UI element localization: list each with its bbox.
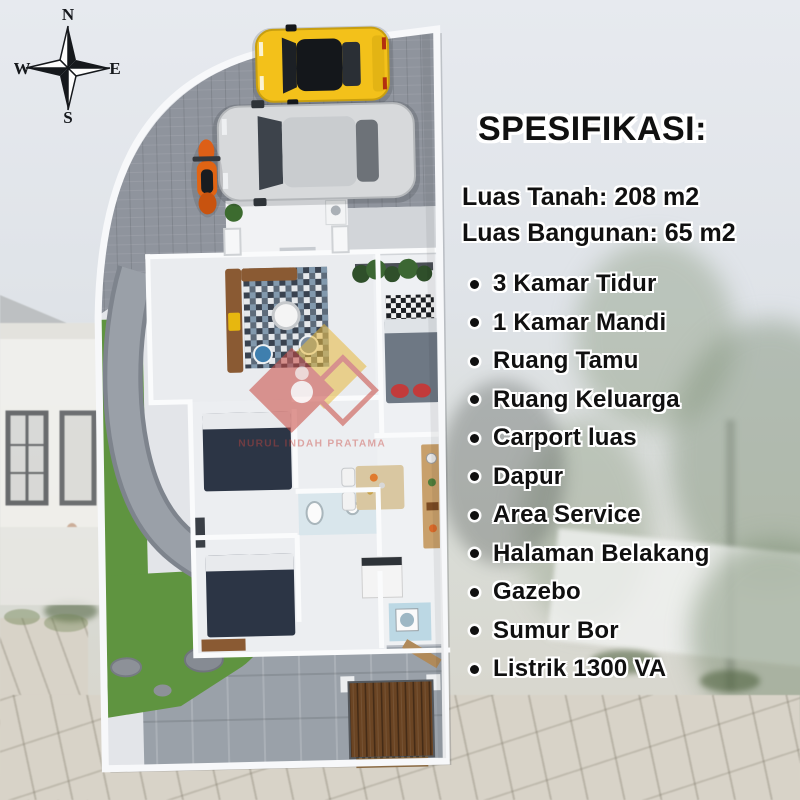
- bed-pillows: [206, 553, 294, 571]
- bullet-icon: [470, 472, 479, 481]
- yellow-car: [252, 22, 394, 108]
- bullet-icon: [470, 318, 479, 327]
- building-area: Luas Bangunan: 65 m2: [462, 215, 798, 251]
- spec-item-label: Ruang Tamu: [493, 347, 639, 375]
- bullet-icon: [470, 511, 479, 520]
- spec-title: SPESIFIKASI:: [478, 110, 798, 149]
- spec-item: Carport luas: [470, 419, 798, 458]
- spec-item: Area Service: [470, 496, 798, 535]
- gazebo-deck: [348, 680, 434, 758]
- compass-west-label: W: [14, 59, 31, 78]
- living-room-sofa: [241, 267, 297, 281]
- silver-car: [212, 97, 420, 208]
- spec-item-label: Dapur: [493, 463, 563, 491]
- spec-item-label: 1 Kamar Mandi: [493, 309, 666, 337]
- background-pavement: [0, 618, 88, 800]
- spec-item-label: Halaman Belakang: [493, 540, 710, 568]
- terrace-pillar: [332, 226, 349, 252]
- flyer: N S W E: [0, 0, 800, 800]
- bullet-icon: [470, 434, 479, 443]
- wardrobe: [195, 517, 206, 547]
- spec-item-label: Gazebo: [493, 578, 581, 606]
- spec-item: Dapur: [470, 458, 798, 497]
- spec-item-label: Carport luas: [493, 424, 637, 452]
- watermark-logo: NURUL INDAH PRATAMA: [228, 322, 398, 450]
- spec-item: Ruang Keluarga: [470, 381, 798, 420]
- dining-chair: [342, 492, 355, 510]
- spec-panel: SPESIFIKASI: Luas Tanah: 208 m2 Luas Ban…: [462, 110, 798, 689]
- watermark-text: NURUL INDAH PRATAMA: [238, 439, 386, 450]
- land-area: Luas Tanah: 208 m2: [462, 179, 798, 215]
- spec-item: Listrik 1300 VA: [470, 650, 798, 689]
- spec-item: Gazebo: [470, 573, 798, 612]
- spec-item-label: Area Service: [493, 501, 641, 529]
- bullet-icon: [470, 357, 479, 366]
- bullet-icon: [470, 549, 479, 558]
- spec-item: Ruang Tamu: [470, 342, 798, 381]
- spec-item: Halaman Belakang: [470, 535, 798, 574]
- toilet: [306, 502, 322, 524]
- spec-item-label: Ruang Keluarga: [493, 386, 680, 414]
- bullet-icon: [470, 280, 479, 289]
- spec-item-label: 3 Kamar Tidur: [493, 270, 657, 298]
- spec-item: 1 Kamar Mandi: [470, 304, 798, 343]
- spec-item-label: Sumur Bor: [493, 617, 619, 645]
- spec-list: 3 Kamar Tidur1 Kamar MandiRuang TamuRuan…: [462, 265, 798, 689]
- spec-item-label: Listrik 1300 VA: [493, 655, 666, 683]
- bullet-icon: [470, 626, 479, 635]
- desk: [201, 639, 245, 652]
- bullet-icon: [470, 665, 479, 674]
- bullet-icon: [470, 588, 479, 597]
- terrace-pillar: [224, 229, 241, 255]
- dining-chair: [342, 468, 355, 486]
- spec-item: Sumur Bor: [470, 612, 798, 651]
- bullet-icon: [470, 395, 479, 404]
- garden-rock: [111, 658, 141, 677]
- spec-item: 3 Kamar Tidur: [470, 265, 798, 304]
